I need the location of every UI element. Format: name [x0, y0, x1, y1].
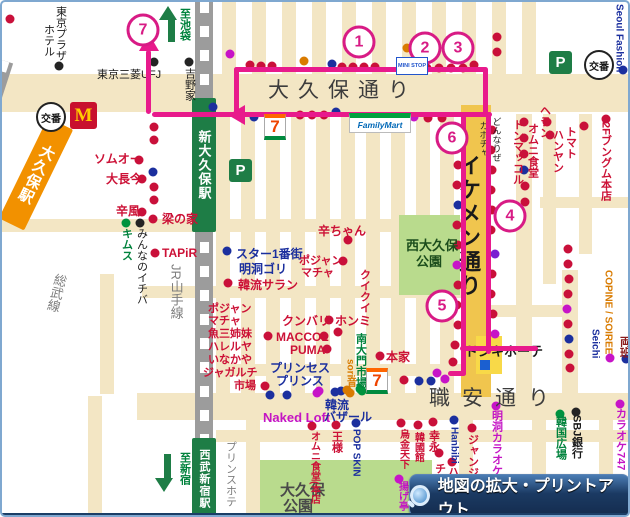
map-label: 幸永 [427, 430, 439, 452]
map-zoom-print-button[interactable]: 地図の拡大・プリントアウト [409, 474, 630, 517]
koban-icon: 交番 [36, 102, 66, 132]
parking-icon: P [229, 159, 252, 182]
map-label: POP SKIN [350, 429, 361, 477]
map-dot [414, 421, 423, 430]
route-segment [460, 346, 538, 351]
map-label: 辛ちゃん [318, 225, 366, 238]
street [562, 270, 578, 394]
map-dot [397, 419, 406, 428]
map-dot [491, 330, 500, 339]
mcdonalds-icon: M [70, 102, 97, 129]
route-stop-4: 4 [494, 200, 527, 233]
station-label: 大久保駅 [13, 141, 60, 208]
map-dot [563, 305, 572, 314]
map-label: 職安通り [429, 388, 561, 410]
station-label: 西武新宿駅 [196, 449, 212, 509]
direction-arrow-head [155, 478, 173, 492]
map-label: 公園 [416, 255, 442, 269]
donki-sign-square [480, 360, 490, 370]
map-dot [185, 58, 194, 67]
map-dot [6, 15, 15, 24]
map-dot [151, 249, 160, 258]
map-dot [261, 382, 270, 391]
station-band: 大久保駅 [0, 118, 73, 231]
map-dot [564, 290, 573, 299]
street [88, 396, 102, 517]
map-label: マチャ [301, 268, 334, 280]
map-label: JR山手線 [169, 264, 183, 319]
map-label: プリンスホテ [224, 441, 236, 507]
seven-eleven-icon: 7 [264, 114, 286, 140]
station-label: 新大久保駅 [195, 130, 214, 200]
map-label: 韓国広場 [554, 416, 566, 460]
parking-icon: P [549, 51, 572, 74]
map-dot [450, 416, 459, 425]
map-dot [493, 48, 502, 57]
map-zoom-print-label: 地図の拡大・プリントアウト [438, 472, 629, 517]
map-label: 揚げ亭 [396, 481, 407, 511]
ministop-icon: MINI STOP [396, 57, 428, 75]
bottom-border-bar [2, 513, 630, 517]
map-dot [136, 219, 145, 228]
map-dot [491, 250, 500, 259]
map-dot [564, 245, 573, 254]
map-label: 本家 [386, 351, 410, 364]
map-label: TAPiR [162, 247, 197, 260]
map-dot [429, 418, 438, 427]
map-dot [331, 388, 340, 397]
koban-icon: 交番 [584, 50, 614, 80]
map-label: 2Fブングム本店 [599, 122, 611, 201]
map-dot [468, 424, 477, 433]
direction-arrow-head [159, 6, 177, 20]
street [282, 2, 296, 74]
map-label: クイクイ [358, 269, 370, 313]
map-label: Seichi [589, 329, 600, 358]
map-label: 烏金天下 [397, 429, 408, 469]
map-label: 王様 [330, 431, 342, 453]
map-label: 明洞カラオケ [490, 410, 502, 476]
map-dot [209, 103, 218, 112]
map-dot [606, 354, 615, 363]
route-arrow [228, 105, 245, 125]
route-segment [486, 114, 491, 354]
map-label: プリンス [276, 375, 324, 388]
map-label: オムニ食堂(本店 [308, 431, 319, 504]
map-dot [451, 341, 460, 350]
map-dot [400, 376, 409, 385]
map-dot [565, 350, 574, 359]
map-label: 辛風 [116, 205, 140, 218]
route-segment [234, 67, 487, 72]
map-label: バザール [324, 411, 372, 424]
map-dot [224, 279, 233, 288]
map-label: ポジャン [299, 256, 342, 268]
map-dot [122, 219, 131, 228]
map-label: ジャガルチ [203, 368, 257, 380]
seven-eleven-icon: 7 [366, 368, 388, 394]
map-label: MACCOL [276, 331, 329, 344]
map-label: どんなりぜ [491, 117, 500, 162]
map-dot [376, 352, 385, 361]
map-dot [565, 275, 574, 284]
map-label: ホテル [42, 24, 54, 57]
map-dot [226, 50, 235, 59]
map-label: 韓國館 [412, 432, 423, 462]
magnifier-icon [410, 485, 430, 506]
rail-sobu [0, 58, 13, 517]
map-label: 韓流サラン [238, 279, 298, 292]
direction-arrow-stem [164, 454, 171, 480]
street [579, 114, 592, 254]
map-dot [493, 33, 502, 42]
map-label: 明洞ゴリ [239, 263, 287, 276]
map-label: ハレルヤ [208, 342, 252, 354]
map-label: 大久保通り [268, 80, 418, 102]
street [341, 112, 355, 394]
map-label: 市場 [234, 381, 256, 393]
map-label: いなかや [208, 355, 252, 367]
street [312, 2, 326, 74]
map-dot [149, 168, 158, 177]
map-dot [564, 260, 573, 269]
map-label: トマト [564, 126, 576, 159]
map-dot [441, 375, 450, 384]
direction-arrow-stem [168, 18, 175, 42]
station-band: 西武新宿駅 [192, 438, 216, 517]
map-dot [150, 136, 159, 145]
street [222, 2, 236, 74]
map-label: Seoul Fashion [613, 4, 624, 72]
route-segment [461, 114, 466, 376]
map-dot [266, 391, 275, 400]
map-dot [150, 123, 159, 132]
map-dot [564, 320, 573, 329]
map-dot [313, 389, 322, 398]
map-label: 吉野家 [183, 68, 195, 101]
map-dot [433, 369, 442, 378]
map-label: キムス [120, 228, 132, 261]
route-segment [146, 50, 151, 114]
map-dot [300, 57, 309, 66]
map-dot [415, 377, 424, 386]
map-label: クンバリ [282, 315, 330, 328]
map-label: プリンセス [270, 362, 330, 375]
map-label: sori音 [344, 359, 355, 387]
route-stop-5: 5 [426, 290, 459, 323]
map-widget: 新大久保駅西武新宿駅大久保駅東京プラザホテル至池袋吉野家東京三菱UFJ大久保通り… [0, 0, 630, 517]
map-dot [427, 377, 436, 386]
map-canvas: 新大久保駅西武新宿駅大久保駅東京プラザホテル至池袋吉野家東京三菱UFJ大久保通り… [2, 2, 630, 517]
route-segment [152, 112, 492, 117]
map-label: オムニ食堂 [526, 123, 538, 178]
street [522, 2, 536, 74]
route-stop-1: 1 [343, 26, 376, 59]
map-label: 至新宿 [178, 452, 190, 485]
street [100, 274, 114, 394]
map-dot [565, 335, 574, 344]
map-label: 総武線 [45, 272, 68, 313]
map-label: COPINE / SOIREE [602, 270, 613, 354]
map-dot [334, 328, 343, 337]
map-dot [150, 196, 159, 205]
route-segment [448, 371, 466, 376]
map-label: 西大久保 [406, 239, 458, 253]
map-label: 魚三姉妹 [208, 329, 252, 341]
route-stop-7: 7 [127, 14, 160, 47]
map-label: SBJ銀行 [570, 415, 582, 458]
map-label: 至池袋 [178, 8, 190, 41]
map-label: Naked Loft [263, 411, 330, 425]
map-dot [449, 358, 458, 367]
map-label: 梁の家 [162, 213, 198, 226]
route-stop-6: 6 [436, 122, 469, 155]
map-label: カラオケ747 [614, 408, 626, 470]
map-label: ポジャン [208, 304, 251, 316]
map-label: 東京三菱UFJ [97, 70, 161, 82]
map-dot [580, 122, 589, 131]
map-dot [150, 183, 159, 192]
map-label: PUMA [290, 344, 325, 357]
street [246, 420, 260, 517]
map-label: 両班 [618, 336, 630, 358]
map-dot [264, 332, 273, 341]
map-dot [566, 364, 575, 373]
map-label: ヘラン [538, 105, 550, 138]
map-dot [149, 215, 158, 224]
map-label: Hanbibi [448, 427, 459, 464]
familymart-icon: FamilyMart [349, 113, 411, 133]
map-label: ハンヤン [551, 129, 563, 173]
map-dot [283, 391, 292, 400]
map-dot [55, 62, 64, 71]
map-label: マチャ [208, 316, 241, 328]
map-label: 大長今 [106, 173, 142, 186]
route-stop-3: 3 [442, 32, 475, 65]
map-label: みんなのイチバ [135, 228, 147, 305]
map-label: ソムオー [94, 153, 142, 166]
map-label: スター1番街 [236, 248, 303, 261]
map-dot [223, 247, 232, 256]
map-label: ホンミ [335, 315, 371, 328]
map-label: トンマッコル [511, 119, 523, 185]
map-label: 東京プラザ [54, 6, 66, 61]
route-segment [483, 67, 488, 117]
